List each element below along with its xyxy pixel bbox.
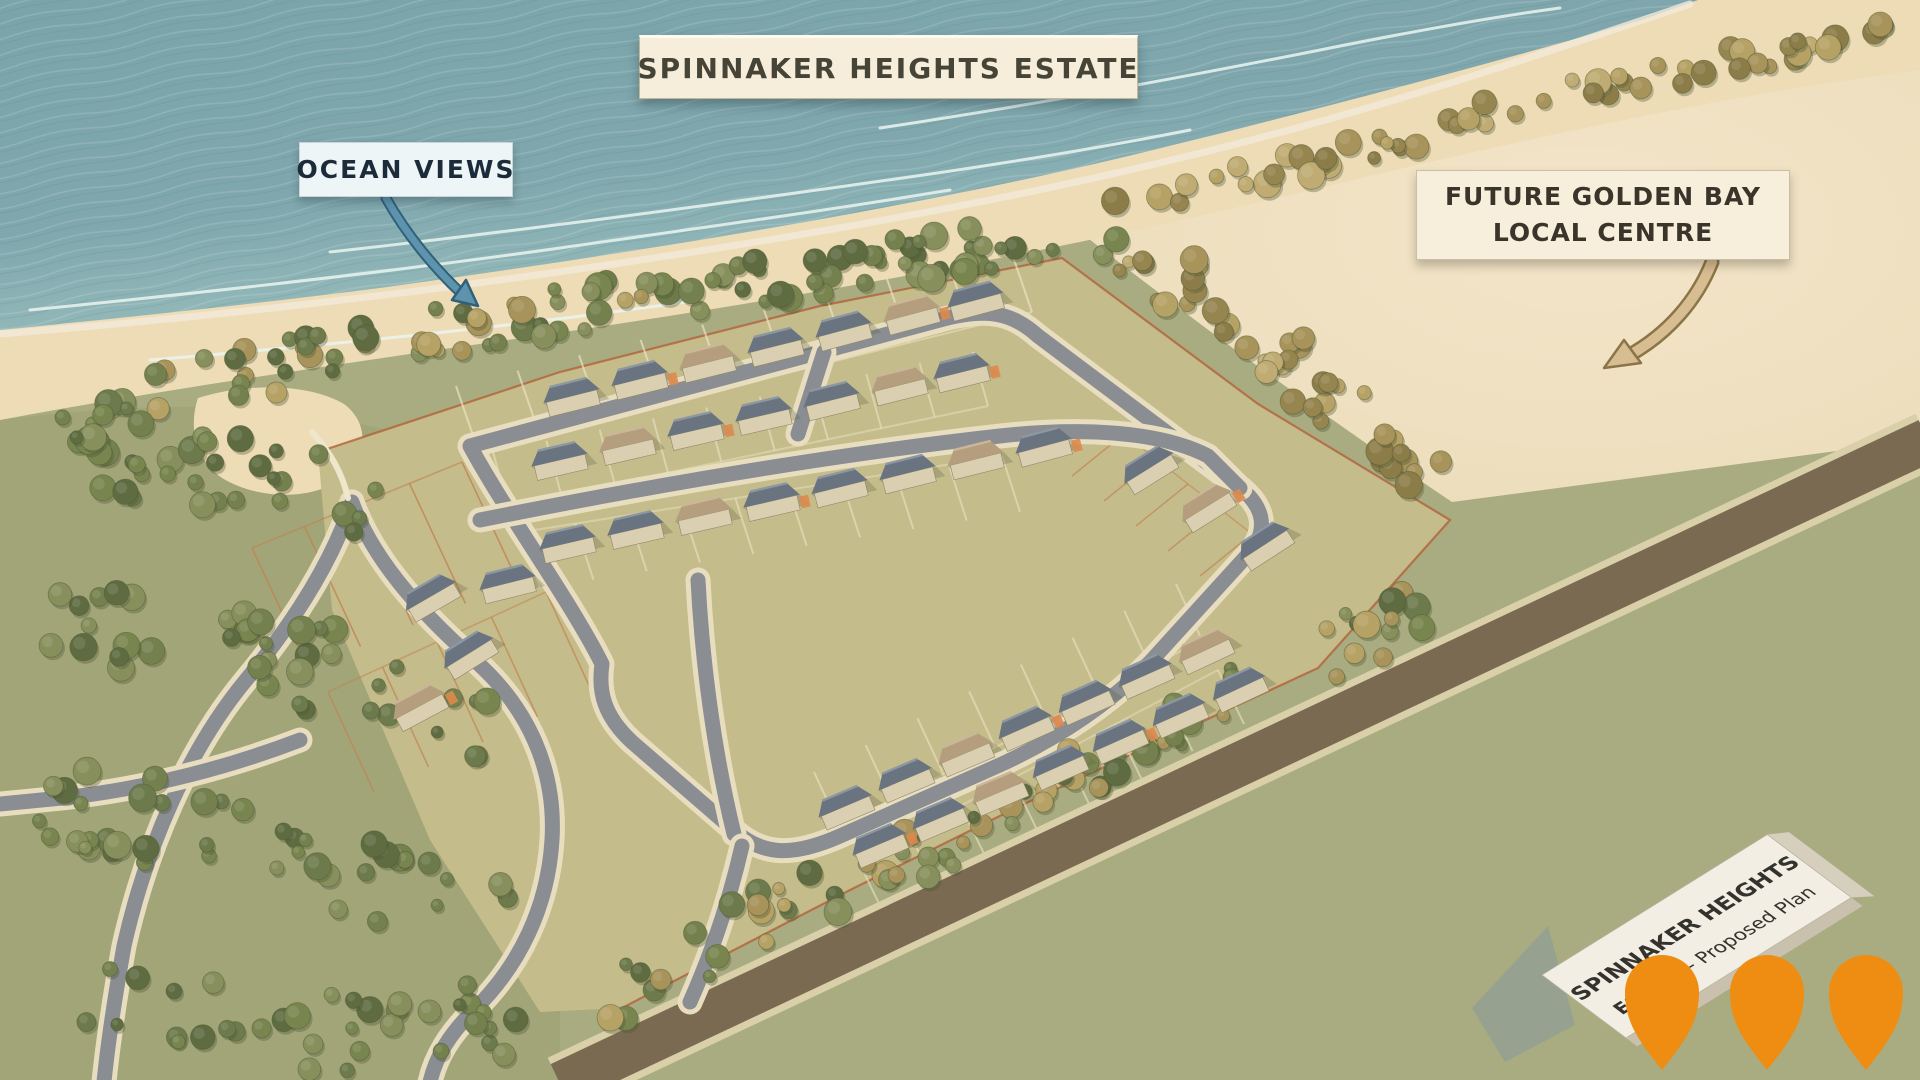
map-pin-icon [1829,955,1903,1070]
map-pin-icon [1625,955,1699,1070]
sign-shadow [1472,926,1575,1062]
future-centre-label: FUTURE GOLDEN BAY LOCAL CENTRE [1416,170,1790,260]
ocean-views-label: OCEAN VIEWS [299,142,513,197]
estate-map-scene: SPINNAKER HEIGHTS ESTATE - Proposed Plan [0,0,1920,1080]
map-pins [1625,955,1903,1070]
future-centre-text: FUTURE GOLDEN BAY LOCAL CENTRE [1445,179,1761,252]
estate-title-banner: SPINNAKER HEIGHTS ESTATE [639,35,1138,99]
map-pin-icon [1730,955,1804,1070]
masterplan-illustration: SPINNAKER HEIGHTS ESTATE - Proposed Plan… [0,0,1920,1080]
